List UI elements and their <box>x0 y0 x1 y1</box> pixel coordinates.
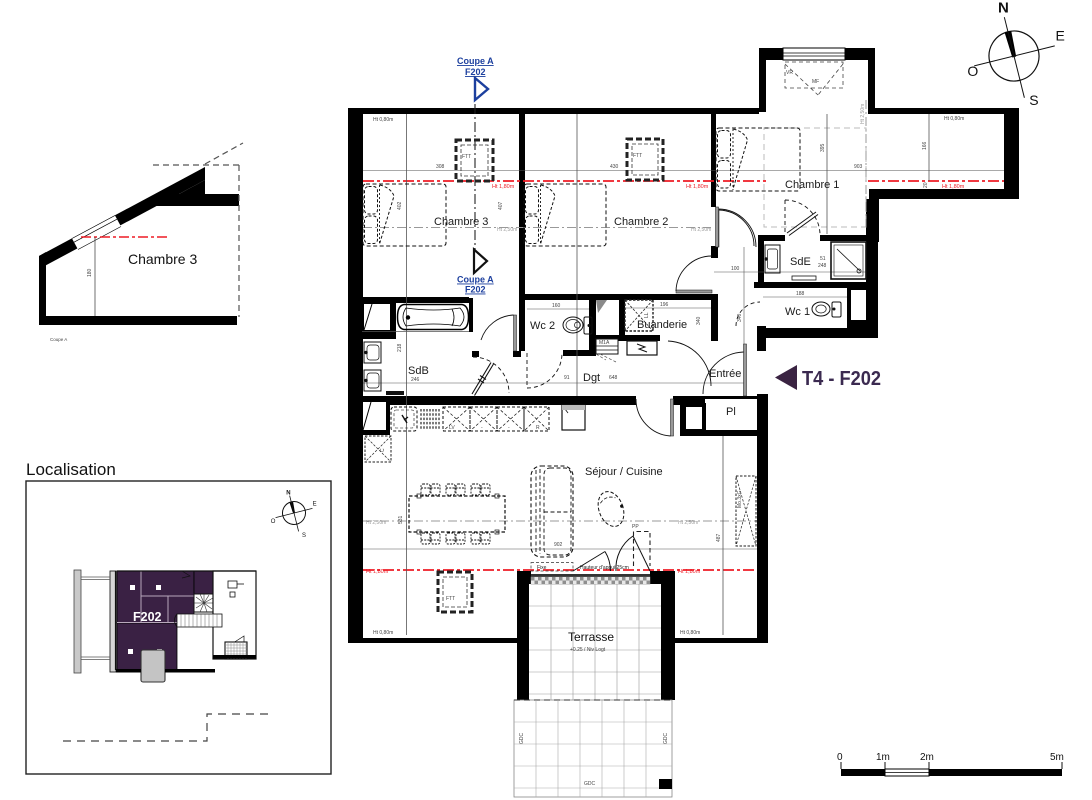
svg-text:MF: MF <box>812 79 819 85</box>
svg-text:Ht 0,80m: Ht 0,80m <box>373 117 393 123</box>
svg-text:Ht 2,50m: Ht 2,50m <box>678 520 698 526</box>
svg-text:Ht 1,80m: Ht 1,80m <box>678 569 701 575</box>
svg-text:20: 20 <box>923 182 929 188</box>
svg-text:Ht 1,80m: Ht 1,80m <box>942 184 965 190</box>
svg-text:F202: F202 <box>133 610 162 624</box>
svg-text:Coupe A: Coupe A <box>457 275 494 285</box>
svg-text:T4 - F202: T4 - F202 <box>802 368 881 390</box>
svg-text:402: 402 <box>397 201 403 210</box>
svg-text:180: 180 <box>87 268 93 277</box>
svg-text:SdE: SdE <box>790 256 811 268</box>
svg-text:2m: 2m <box>920 752 934 763</box>
svg-text:160: 160 <box>552 303 561 309</box>
svg-text:S: S <box>1029 92 1038 108</box>
svg-text:E: E <box>1055 28 1064 44</box>
svg-text:Séjour / Cuisine: Séjour / Cuisine <box>585 466 663 478</box>
svg-text:GDC: GDC <box>584 781 596 787</box>
svg-text:Entrée: Entrée <box>709 368 741 380</box>
svg-text:Ht 0,80m: Ht 0,80m <box>944 116 964 122</box>
svg-text:F202: F202 <box>465 285 486 295</box>
svg-text:246: 246 <box>411 377 420 383</box>
svg-text:91: 91 <box>564 375 570 381</box>
svg-text:487: 487 <box>716 533 722 542</box>
svg-text:PP: PP <box>632 524 639 530</box>
svg-text:Ht 1,80m: Ht 1,80m <box>686 184 709 190</box>
svg-text:Ht 2,50m: Ht 2,50m <box>497 227 517 233</box>
svg-text:Coupe A: Coupe A <box>457 56 494 66</box>
svg-text:GDC: GDC <box>519 733 525 745</box>
svg-text:100: 100 <box>731 266 740 272</box>
svg-text:F202: F202 <box>465 67 486 77</box>
svg-text:308: 308 <box>436 164 445 170</box>
svg-text:531: 531 <box>398 515 404 524</box>
svg-text:Ht 1,80m: Ht 1,80m <box>492 184 515 190</box>
svg-text:Hauteur d'appui 25cm: Hauteur d'appui 25cm <box>580 565 629 571</box>
svg-text:Chambre 3: Chambre 3 <box>434 216 488 228</box>
svg-text:O: O <box>271 519 276 525</box>
svg-text:Ht 0,80m: Ht 0,80m <box>373 630 393 636</box>
svg-text:Ht 2,50m: Ht 2,50m <box>860 104 866 124</box>
svg-text:N: N <box>286 490 290 496</box>
svg-text:Fixe: Fixe <box>537 565 547 571</box>
svg-text:Chambre 2: Chambre 2 <box>614 216 668 228</box>
svg-text:5m: 5m <box>1050 752 1064 763</box>
svg-text:FTT: FTT <box>462 154 471 160</box>
svg-text:248: 248 <box>818 263 827 269</box>
svg-text:+0.25 / Niv Logt: +0.25 / Niv Logt <box>570 647 606 653</box>
svg-text:Terrasse: Terrasse <box>568 630 614 644</box>
svg-text:Mo.3xG: Mo.3xG <box>737 490 743 508</box>
svg-text:N: N <box>998 0 1009 17</box>
svg-text:M1A: M1A <box>599 340 610 346</box>
svg-text:648: 648 <box>609 375 618 381</box>
svg-text:Dgt: Dgt <box>583 372 600 384</box>
svg-text:SdB: SdB <box>408 365 429 377</box>
svg-text:Chambre 1: Chambre 1 <box>785 179 839 191</box>
svg-text:Buanderie: Buanderie <box>637 319 687 331</box>
svg-text:VR: VR <box>786 70 793 76</box>
svg-text:Wc 1: Wc 1 <box>785 306 810 318</box>
svg-text:395: 395 <box>820 143 826 152</box>
svg-text:C: C <box>380 448 386 452</box>
svg-text:FTT: FTT <box>633 153 642 159</box>
svg-text:0: 0 <box>837 752 843 763</box>
svg-text:FTT: FTT <box>446 596 455 602</box>
svg-text:902: 902 <box>554 542 563 548</box>
svg-text:Ht 1,80m: Ht 1,80m <box>366 569 389 575</box>
svg-text:S: S <box>302 533 306 539</box>
svg-text:E: E <box>313 501 317 507</box>
svg-text:Coupe A: Coupe A <box>50 337 67 342</box>
svg-text:340: 340 <box>696 316 702 325</box>
svg-text:GDC: GDC <box>663 733 669 745</box>
svg-text:1m: 1m <box>876 752 890 763</box>
svg-text:LV: LV <box>449 425 455 431</box>
svg-text:Ht 2,50m: Ht 2,50m <box>366 520 386 526</box>
svg-text:Chambre 3: Chambre 3 <box>128 251 197 267</box>
svg-text:Ht 2,50m: Ht 2,50m <box>691 227 711 233</box>
svg-text:Localisation: Localisation <box>26 460 116 479</box>
svg-text:51: 51 <box>820 256 826 262</box>
svg-text:430: 430 <box>610 164 619 170</box>
svg-text:Ht 0,80m: Ht 0,80m <box>680 630 700 636</box>
svg-text:Pl: Pl <box>726 406 736 418</box>
svg-text:O: O <box>967 63 978 79</box>
svg-text:Wc 2: Wc 2 <box>530 320 555 332</box>
svg-text:LL: LL <box>644 312 650 318</box>
svg-text:188: 188 <box>796 291 805 297</box>
svg-text:407: 407 <box>498 201 504 210</box>
svg-text:R: R <box>536 425 540 431</box>
svg-text:903: 903 <box>854 164 863 170</box>
svg-text:196: 196 <box>660 302 669 308</box>
svg-text:166: 166 <box>922 141 928 150</box>
svg-text:218: 218 <box>397 343 403 352</box>
